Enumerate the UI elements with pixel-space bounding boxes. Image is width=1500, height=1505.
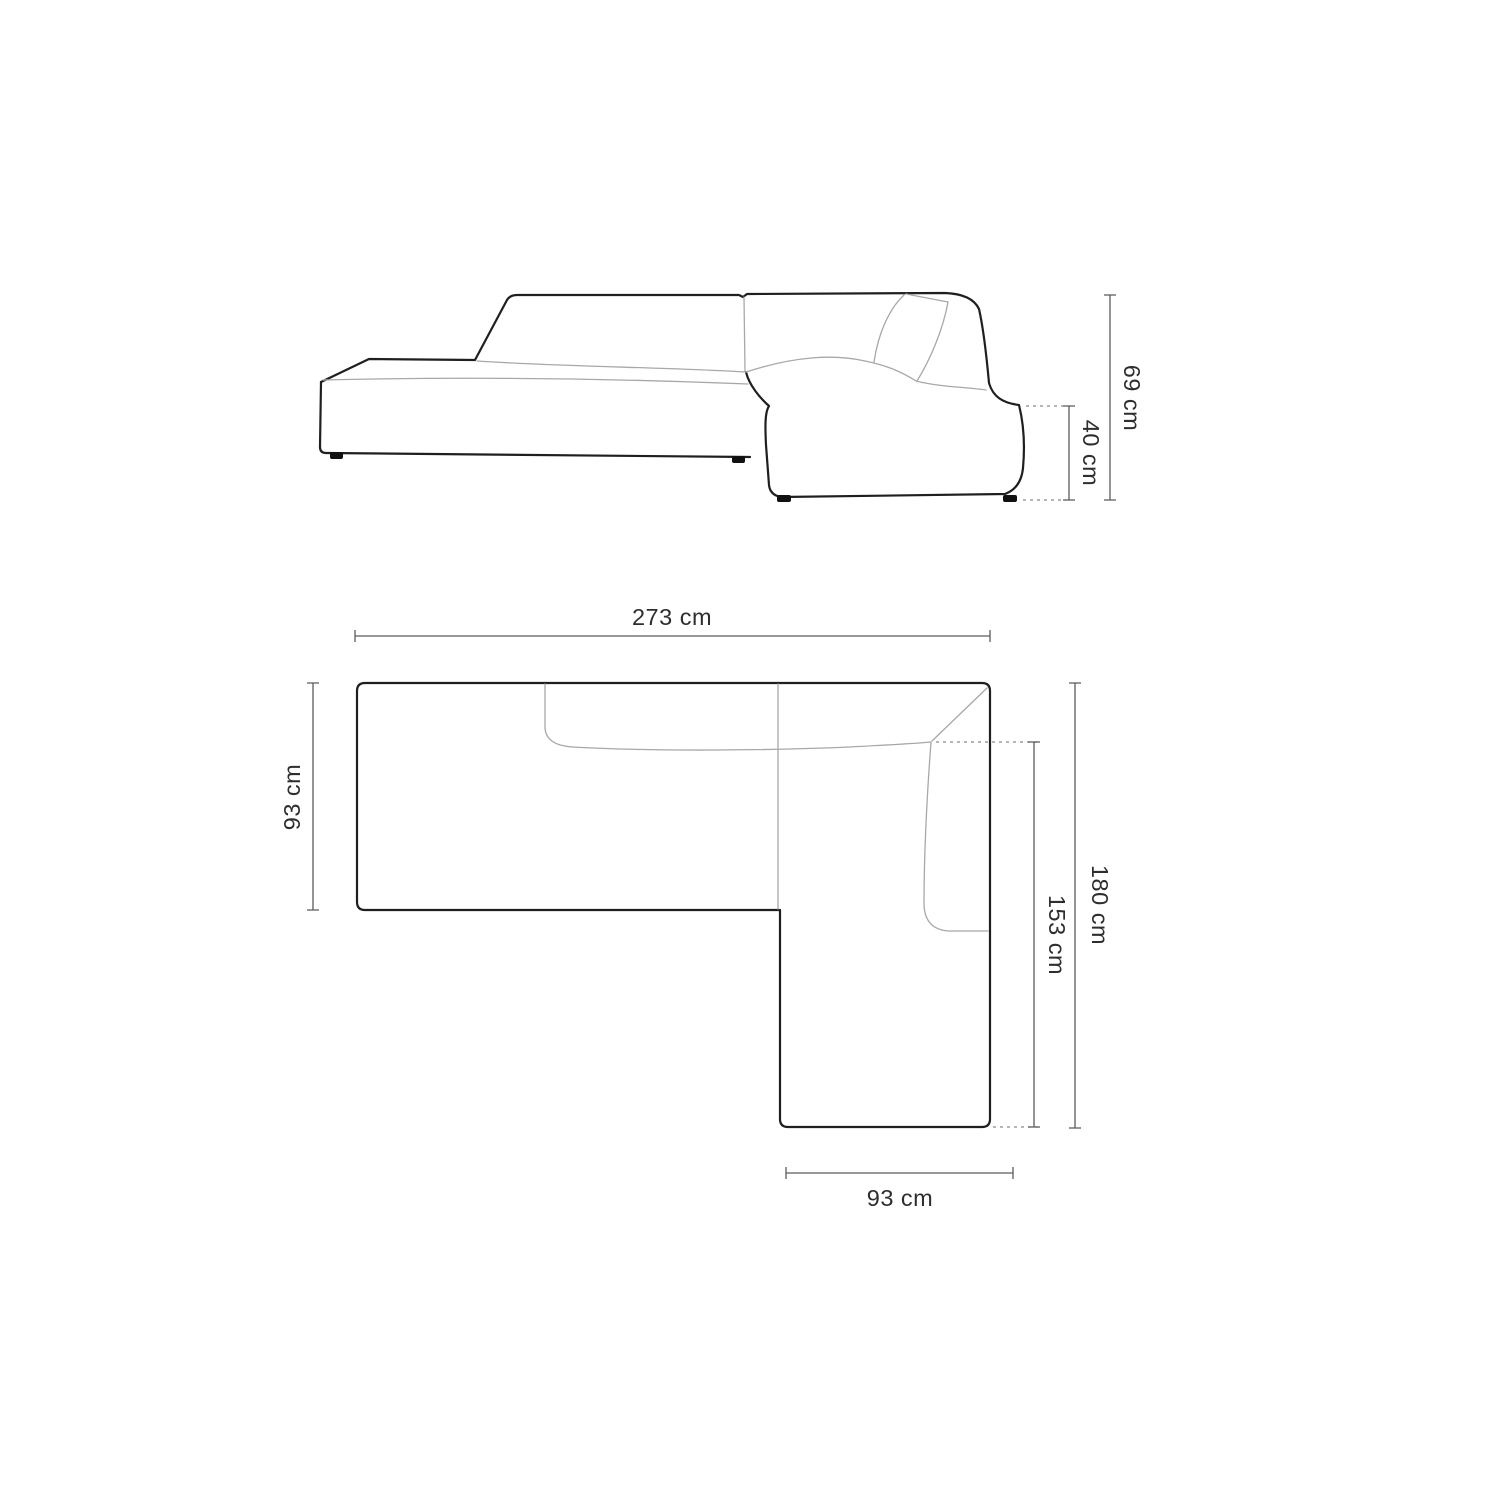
dimension-left-depth-line: [307, 683, 319, 910]
dimension-chaise-length: 153 cm: [1028, 742, 1070, 1127]
top-view-detail-lines: [545, 684, 988, 931]
dimension-chaise-length-label: 153 cm: [1044, 895, 1070, 975]
sofa-dimension-diagram: 69 cm 40 cm: [0, 0, 1500, 1500]
side-view-projection-lines: [1023, 406, 1066, 500]
dimension-chaise-width: 93 cm: [786, 1167, 1013, 1211]
top-view: 273 cm 93 cm 180 cm 153 cm 93 cm: [279, 604, 1113, 1211]
side-view-sofa-outline: [320, 293, 1024, 497]
dimension-total-height-line: [1104, 295, 1116, 500]
dimension-total-depth: 180 cm: [1069, 683, 1113, 1128]
dimension-total-width-label: 273 cm: [632, 604, 712, 630]
chaise-left-foot: [777, 495, 791, 502]
sofa-bench-base: [320, 382, 750, 457]
dimension-left-depth-label: 93 cm: [279, 764, 305, 831]
chaise-right-foot: [1003, 495, 1017, 502]
bench-left-foot: [330, 452, 343, 459]
dimension-seat-height-line: [1063, 406, 1075, 500]
dimension-chaise-width-line: [786, 1167, 1013, 1179]
dimension-total-height: 69 cm: [1104, 295, 1145, 500]
side-view: 69 cm 40 cm: [320, 293, 1145, 502]
dimension-total-width: 273 cm: [355, 604, 990, 642]
dimension-chaise-length-line: [1028, 742, 1040, 1127]
side-view-detail-lines: [323, 294, 986, 390]
dimension-seat-height: 40 cm: [1063, 406, 1104, 500]
plan-corner-diagonal-line: [932, 688, 987, 741]
dimension-total-depth-label: 180 cm: [1087, 865, 1113, 945]
diagram-canvas: 69 cm 40 cm: [0, 0, 1500, 1500]
bench-right-foot: [732, 456, 745, 463]
dimension-seat-height-label: 40 cm: [1078, 420, 1104, 487]
bench-seat-line: [477, 361, 746, 372]
chaise-seat-curve: [746, 357, 986, 390]
sofa-back-silhouette: [321, 293, 1024, 497]
plan-chaise-inner-line: [924, 742, 988, 931]
top-view-projection-lines: [936, 742, 1038, 1127]
bench-front-top-edge-line: [323, 378, 748, 384]
dimension-chaise-width-label: 93 cm: [867, 1185, 934, 1211]
plan-backrest-inner-line: [545, 684, 931, 750]
back-cushion-front-curve: [917, 302, 948, 381]
dimension-total-width-line: [355, 630, 990, 642]
back-cushion-top-line: [906, 294, 948, 302]
module-seam-line: [744, 297, 745, 371]
dimension-left-depth: 93 cm: [279, 683, 319, 910]
dimension-total-height-label: 69 cm: [1119, 365, 1145, 432]
back-cushion-left-curve: [874, 295, 904, 362]
